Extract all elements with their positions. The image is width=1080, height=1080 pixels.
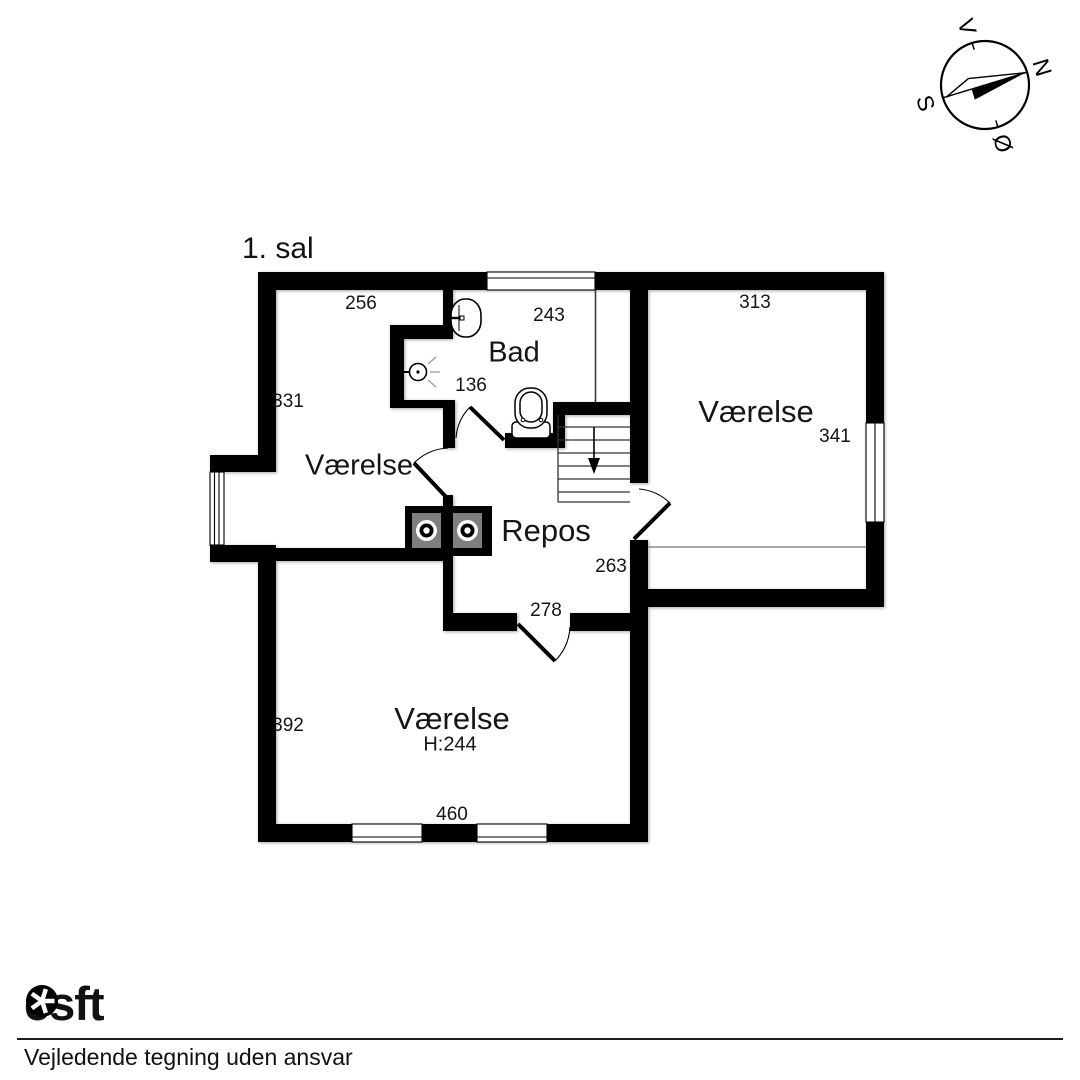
dim-243: 243 — [533, 305, 565, 327]
dim-263: 263 — [595, 556, 627, 578]
window-bay-left — [210, 472, 224, 545]
stairs-down-arrow-icon — [588, 427, 600, 474]
wall-left-lower — [258, 562, 276, 824]
wall-bad-niche-c — [390, 332, 404, 408]
floorplan-page: N Ø S V 1. sal Bad Værelse Værelse Repos… — [0, 0, 1080, 1080]
wall-lamp-icon — [404, 357, 440, 387]
door-room-left — [414, 448, 448, 499]
room-label-bad: Bad — [488, 337, 540, 370]
wall-rightroom-stub — [630, 540, 648, 824]
room-label-left: Værelse — [305, 450, 413, 483]
wall-repos-bottom-left — [443, 613, 517, 631]
door-swing-arc — [639, 489, 670, 503]
wall-rightroom-left — [630, 290, 648, 483]
compass-label-north: N — [1028, 56, 1058, 80]
disclaimer-text: Vejledende tegning uden ansvar — [24, 1044, 353, 1071]
esoft-logo: es ft — [24, 984, 104, 1024]
door-room-lower — [518, 624, 570, 661]
wall-stair-top — [553, 402, 648, 415]
dim-313: 313 — [739, 292, 771, 314]
washer-icon — [411, 512, 442, 549]
dim-331: 331 — [272, 391, 304, 413]
compass-label-south: S — [911, 92, 940, 114]
dim-256: 256 — [345, 293, 377, 315]
room-label-right: Værelse — [698, 394, 813, 430]
logo-text-ft: ft — [74, 984, 103, 1024]
room-label-lower: Værelse — [394, 701, 509, 737]
dim-460: 460 — [436, 804, 468, 826]
door-room-right — [634, 489, 670, 539]
dim-392: 392 — [272, 715, 304, 737]
wall-left-upper — [258, 290, 276, 455]
compass-needle-icon — [944, 62, 1029, 107]
compass-rose: N Ø S V — [893, 0, 1075, 174]
wall-door-post — [443, 400, 455, 448]
dim-136: 136 — [455, 375, 487, 397]
window-bottom-1 — [352, 824, 422, 842]
wall-repos-bottom-right — [570, 613, 648, 631]
door-bad — [456, 407, 504, 440]
footer-divider — [17, 1038, 1063, 1040]
floor-title: 1. sal — [242, 232, 314, 266]
room-label-repos: Repos — [501, 513, 591, 549]
staircase — [558, 415, 630, 502]
walls — [210, 272, 884, 842]
wall-bottom — [258, 824, 648, 842]
wall-right-bottom — [640, 589, 884, 607]
window-top — [487, 272, 595, 290]
compass-label-east: Ø — [988, 131, 1018, 156]
door-swing-arc — [456, 407, 470, 438]
window-bottom-2 — [477, 824, 547, 842]
dim-341: 341 — [819, 426, 851, 448]
toilet-icon — [512, 388, 550, 438]
door-swing-arc — [555, 627, 570, 661]
appliance-unit — [405, 506, 492, 556]
door-swing-arc — [414, 448, 448, 463]
dim-278: 278 — [530, 600, 562, 622]
wall-bay-top — [210, 455, 276, 472]
compass-label-west: V — [952, 16, 982, 39]
room-height-label: H:244 — [423, 734, 476, 757]
dryer-icon — [452, 512, 483, 549]
window-right — [866, 423, 884, 522]
esoft-gear-icon — [25, 984, 59, 1018]
